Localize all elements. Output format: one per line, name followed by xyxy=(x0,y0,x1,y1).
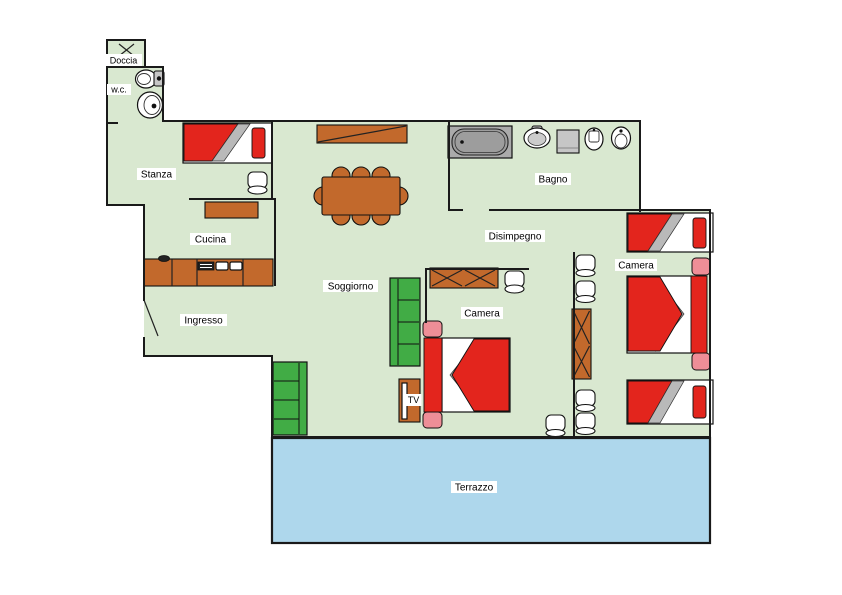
stanza-single-bed xyxy=(183,123,272,163)
sofa-bottom xyxy=(273,362,307,435)
cucina-desk xyxy=(205,202,258,218)
room-label-bagno: Bagno xyxy=(535,173,571,186)
svg-text:Doccia: Doccia xyxy=(110,56,138,66)
wardrobe-camera-centrale xyxy=(430,268,498,288)
room-label-wc: w.c. xyxy=(107,84,131,95)
svg-text:TV: TV xyxy=(408,395,420,405)
svg-text:Cucina: Cucina xyxy=(195,235,227,246)
svg-text:Camera: Camera xyxy=(464,309,500,320)
svg-text:Terrazzo: Terrazzo xyxy=(455,483,494,494)
wc-toilet xyxy=(136,70,165,88)
sofa-right xyxy=(390,278,420,366)
camera-centrale-chair xyxy=(505,271,524,293)
bagno-bidet xyxy=(612,127,631,149)
stanza-chair xyxy=(248,172,267,194)
floor-plan-svg: Doccia w.c. Stanza Cucina Ingresso Soggi… xyxy=(0,0,842,595)
dining-table xyxy=(322,177,400,215)
room-label-ingresso: Ingresso xyxy=(180,314,227,327)
pot xyxy=(159,256,170,262)
kitchen-sink xyxy=(216,262,228,270)
kitchen-counter xyxy=(144,256,273,287)
svg-text:Soggiorno: Soggiorno xyxy=(328,282,374,293)
bathtub xyxy=(448,126,512,158)
svg-text:Disimpegno: Disimpegno xyxy=(489,232,542,243)
room-label-terrazzo: Terrazzo xyxy=(451,481,497,494)
single-bed-top xyxy=(627,213,713,252)
room-label-stanza: Stanza xyxy=(137,168,176,181)
stove xyxy=(198,262,214,270)
floor-plan: Doccia w.c. Stanza Cucina Ingresso Soggi… xyxy=(0,0,842,595)
svg-text:Bagno: Bagno xyxy=(539,175,568,186)
room-label-doccia: Doccia xyxy=(105,54,142,66)
svg-text:Ingresso: Ingresso xyxy=(184,316,223,327)
single-bed-bottom xyxy=(627,380,713,424)
svg-text:Camera: Camera xyxy=(618,261,654,272)
room-label-soggiorno: Soggiorno xyxy=(323,280,378,293)
svg-text:w.c.: w.c. xyxy=(110,85,127,95)
svg-text:Stanza: Stanza xyxy=(141,170,173,181)
kitchen-sink xyxy=(230,262,242,270)
camera-destra-chair xyxy=(576,390,595,412)
room-label-camera-destra: Camera xyxy=(615,259,657,272)
camera-centrale-foot-chair xyxy=(546,415,565,437)
washing-machine xyxy=(557,130,579,153)
room-label-cucina: Cucina xyxy=(190,233,231,246)
tv-label: TV xyxy=(406,394,422,406)
camera-destra-chair xyxy=(576,413,595,435)
bagno-toilet xyxy=(585,128,603,150)
room-label-camera-centrale: Camera xyxy=(461,307,503,320)
room-label-disimpegno: Disimpegno xyxy=(485,230,545,243)
camera-destra-chair xyxy=(576,281,595,303)
sideboard xyxy=(317,125,407,143)
camera-destra-chair xyxy=(576,255,595,277)
wc-bidet xyxy=(138,92,163,118)
